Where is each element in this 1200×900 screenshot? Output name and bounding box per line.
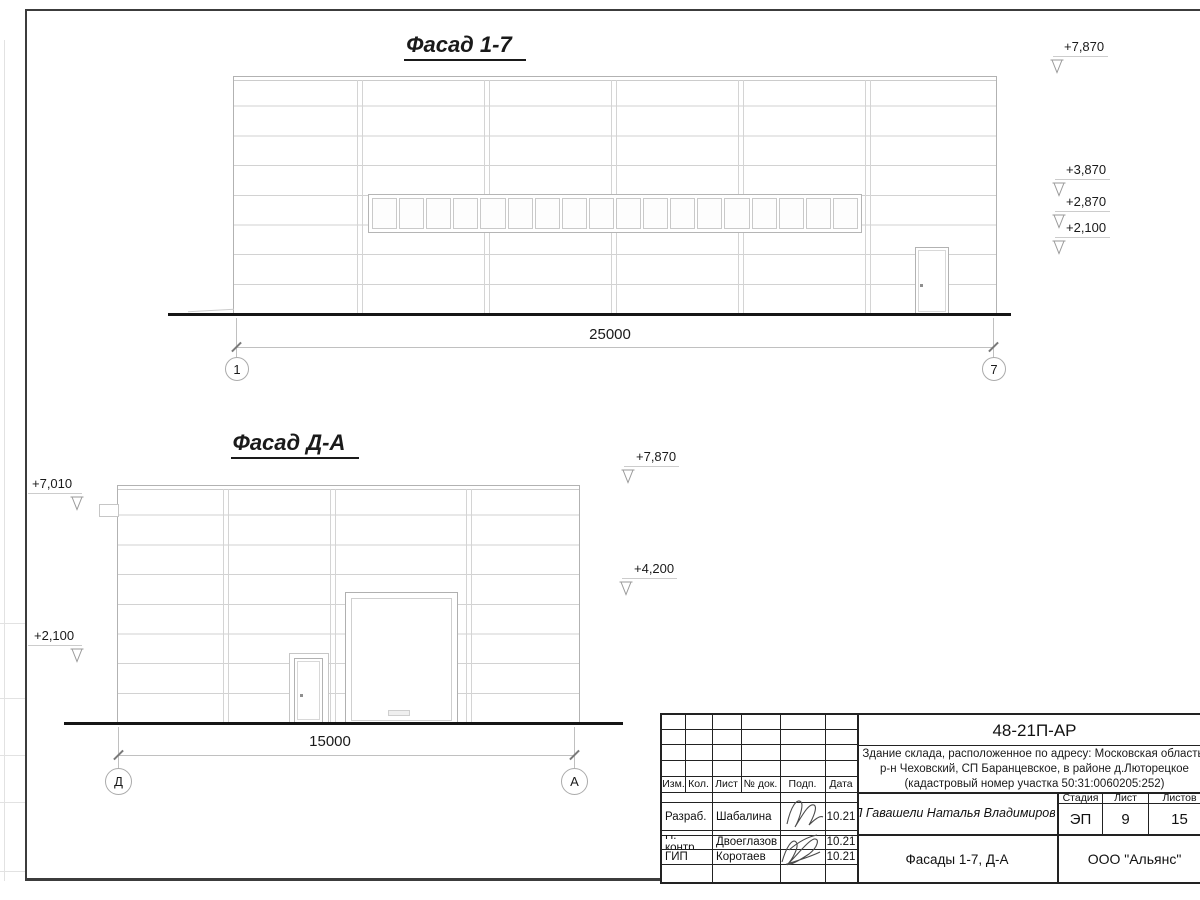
frame-left-line [25,9,27,881]
elevation-arrow-icon [1052,238,1066,256]
door-leaf [918,250,946,312]
axis-bubble-a: А [561,768,588,795]
door-leaf [297,661,320,720]
tb-sheet-label: Лист [1103,793,1148,803]
window-pane [399,198,424,229]
dimension-line [118,755,574,756]
tb-address-line3: (кадастровый номер участка 50:31:0060205… [859,777,1200,792]
column-joint [466,489,472,724]
margin-divider-5 [0,871,25,872]
tb-name-shabalina: Шабалина [713,803,780,830]
tb-sheets-label: Листов [1149,793,1200,803]
side-door [294,658,323,723]
window-pane [833,198,858,229]
tb-header-list: Лист [712,776,741,792]
margin-divider-1 [0,623,25,624]
elevation-arrow-icon [1050,57,1064,75]
elevation-arrow-icon [1052,212,1066,230]
extension-line [574,727,575,769]
tb-client: ИП Гавашели Наталья Владимировна [859,794,1055,832]
tb-doc-number: 48-21П-АР [859,717,1200,744]
elevation-label: +7,870 [1064,39,1104,54]
window-pane [697,198,722,229]
elevation-arrow-icon [70,494,84,512]
axis-label: А [570,774,579,789]
column-joint [330,489,336,724]
axis-label: Д [114,774,123,789]
tb-header-data: Дата [825,776,857,792]
window-strip [368,194,862,233]
signature-dvoeglazov-korotaev [776,828,824,872]
tb-address-line2: р-н Чеховский, СП Баранцевское, в районе… [859,762,1200,777]
window-pane [508,198,533,229]
door-handle [300,694,303,697]
tb-name-korotaev: Коротаев [713,849,780,864]
axis-bubble-7: 7 [982,357,1006,381]
tb-date: 10.21 [825,849,857,864]
window-pane [480,198,505,229]
window-pane [779,198,804,229]
window-pane [535,198,560,229]
margin-divider-4 [0,802,25,803]
window-pane [426,198,451,229]
ground-line [64,722,623,725]
gate [345,592,458,723]
tb-stage-label: Стадия [1059,793,1102,803]
tb-sheets-value: 15 [1149,804,1200,834]
tb-address-line1: Здание склада, расположенное по адресу: … [859,747,1200,762]
window-pane [453,198,478,229]
window-pane [643,198,668,229]
elevation-label: +2,100 [1066,220,1106,235]
window-pane [616,198,641,229]
elevation-arrow-icon [621,467,635,485]
entrance-door [915,247,949,315]
elevation-arrow-icon [70,646,84,664]
facade-d-a-title: Фасад Д-А [185,430,405,456]
elevation-arrow-icon [1052,180,1066,198]
ground-line [168,313,1011,316]
tb-header-doc: № док. [741,776,780,792]
facade-1-7-title: Фасад 1-7 [340,32,590,58]
tb-name-dvoeglazov: Двоеглазов [713,835,780,849]
column-joint [357,80,363,315]
window-pane [562,198,587,229]
signature-shabalina [779,794,825,832]
column-joint [865,80,871,315]
tb-drawing-title: Фасады 1-7, Д-А [859,836,1055,882]
window-pane [724,198,749,229]
elevation-label: +4,200 [634,561,674,576]
column-joint [223,489,229,724]
tb-header-izm: Изм. [662,776,685,792]
axis-bubble-1: 1 [225,357,249,381]
tb-grid-line [662,744,857,745]
tb-grid-line [662,792,857,793]
gate-handle [388,710,410,716]
tb-header-podp: Подп. [780,776,825,792]
elevation-label: +3,870 [1066,162,1106,177]
window-pane [752,198,777,229]
dimension-value: 25000 [535,326,685,343]
parapet-line [118,489,579,490]
wall-protrusion [99,504,119,517]
tb-grid-line [662,830,857,831]
tb-grid-line [662,864,857,865]
axis-label: 1 [233,362,240,377]
door-handle [920,284,923,287]
margin-divider-2 [0,698,25,699]
tb-address: Здание склада, расположенное по адресу: … [859,747,1200,792]
window-pane [372,198,397,229]
tb-date: 10.21 [825,835,857,849]
tb-grid-line [662,729,857,730]
tb-role-razrab: Разраб. [662,803,712,830]
tb-company: ООО "Альянс" [1059,836,1200,882]
window-pane [670,198,695,229]
window-pane [806,198,831,229]
elevation-label: +7,870 [636,449,676,464]
extension-line [118,727,119,769]
axis-label: 7 [990,362,997,377]
tb-role-gip: ГИП [662,849,712,864]
tb-header-kol: Кол. [685,776,712,792]
elevation-label: +2,870 [1066,194,1106,209]
dimension-line [236,347,993,348]
elevation-label: +2,100 [34,628,74,643]
elevation-label: +7,010 [32,476,72,491]
frame-top-line [25,9,1200,11]
title-block: Изм. Кол. Лист № док. Подп. Дата Разраб.… [660,713,1200,884]
tb-role-nkontr: Н. контр. [662,835,712,849]
tb-grid-line [857,745,1200,746]
tb-date: 10.21 [825,803,857,830]
dimension-value: 15000 [255,733,405,750]
tb-grid-line [662,760,857,761]
window-pane [589,198,614,229]
drawing-sheet: { "ink_color": "#1a1a1a", "facade1": { "… [0,0,1200,900]
extension-line [236,318,237,358]
ground-approach-line [188,309,234,312]
gate-leaf [351,598,452,721]
tb-sheet-value: 9 [1103,804,1148,834]
axis-bubble-d: Д [105,768,132,795]
margin-divider-3 [0,755,25,756]
extension-line [993,318,994,358]
tb-stage-value: ЭП [1059,804,1102,834]
elevation-arrow-icon [619,579,633,597]
